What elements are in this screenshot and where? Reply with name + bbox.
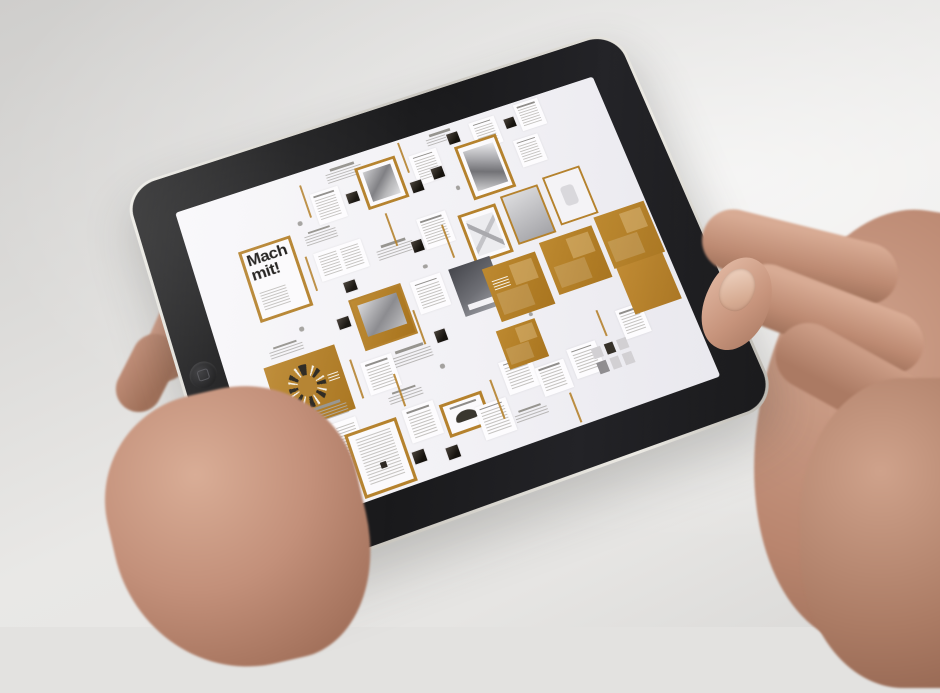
dot-marker <box>528 312 534 318</box>
photo-chip-thumbnail[interactable] <box>502 115 519 130</box>
photo-chip-thumbnail[interactable] <box>342 278 359 295</box>
mini-thumb <box>622 351 636 365</box>
page-thumbnail[interactable] <box>534 358 574 397</box>
caption-text <box>512 401 552 427</box>
mini-thumb <box>603 341 617 355</box>
home-button-icon <box>196 368 210 382</box>
page-thumbnail[interactable] <box>401 400 444 444</box>
caption-text <box>301 223 339 246</box>
divider-line <box>595 310 607 336</box>
photo-chip-thumbnail[interactable] <box>444 443 462 461</box>
dot-marker <box>455 185 461 190</box>
page-thumbnail[interactable] <box>309 186 347 225</box>
page-thumbnail[interactable] <box>513 133 548 167</box>
framed-photo-page[interactable] <box>354 156 409 210</box>
mini-thumb <box>609 355 623 369</box>
photo-chip-thumbnail[interactable] <box>335 315 352 332</box>
spread-label-text <box>491 276 511 292</box>
photo-chip-thumbnail[interactable] <box>445 130 462 146</box>
dot-marker <box>299 326 305 332</box>
ochre-spread-labeled[interactable] <box>482 251 556 322</box>
photo-chip-thumbnail[interactable] <box>432 327 450 344</box>
page-thumbnail[interactable] <box>410 273 452 314</box>
divider-line <box>299 185 312 218</box>
photo-chip-thumbnail[interactable] <box>430 165 447 181</box>
ochre-photo-page[interactable] <box>348 283 418 351</box>
dot-marker <box>439 363 445 369</box>
photo-chip-thumbnail[interactable] <box>411 448 429 466</box>
framed-photo-page-tall[interactable] <box>454 134 516 200</box>
mach-mit-title: Mach mit! <box>245 241 297 283</box>
dot-marker <box>297 221 303 226</box>
mini-thumb <box>596 360 610 374</box>
photo-chip-thumbnail[interactable] <box>344 189 361 205</box>
page-thumbnail-2col[interactable] <box>313 238 370 281</box>
home-button[interactable] <box>186 358 220 392</box>
mach-mit-cover-page[interactable]: Mach mit! <box>238 235 314 323</box>
divider-line <box>569 392 582 422</box>
dot-marker <box>423 264 429 269</box>
